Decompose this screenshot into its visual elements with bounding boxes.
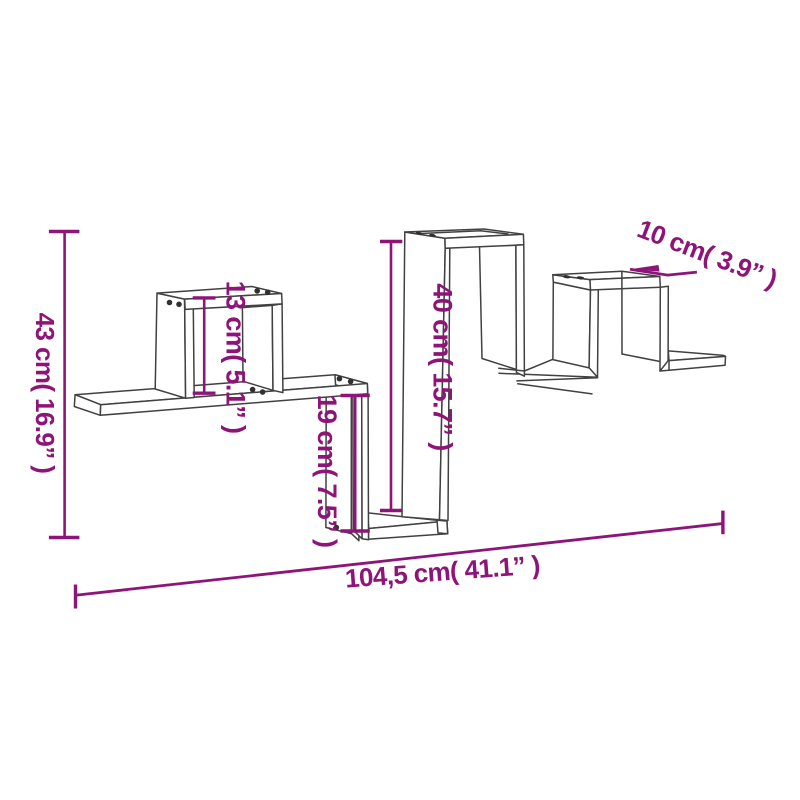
svg-text:40 cm( 15.7” ): 40 cm( 15.7” ) (428, 283, 458, 450)
svg-text:13 cm( 5.1” ): 13 cm( 5.1” ) (221, 281, 251, 434)
svg-text:19 cm( 7.5” ): 19 cm( 7.5” ) (312, 395, 342, 548)
svg-text:43 cm( 16.9” ): 43 cm( 16.9” ) (30, 313, 60, 474)
svg-text:104,5 cm( 41.1” ): 104,5 cm( 41.1” ) (344, 549, 541, 593)
